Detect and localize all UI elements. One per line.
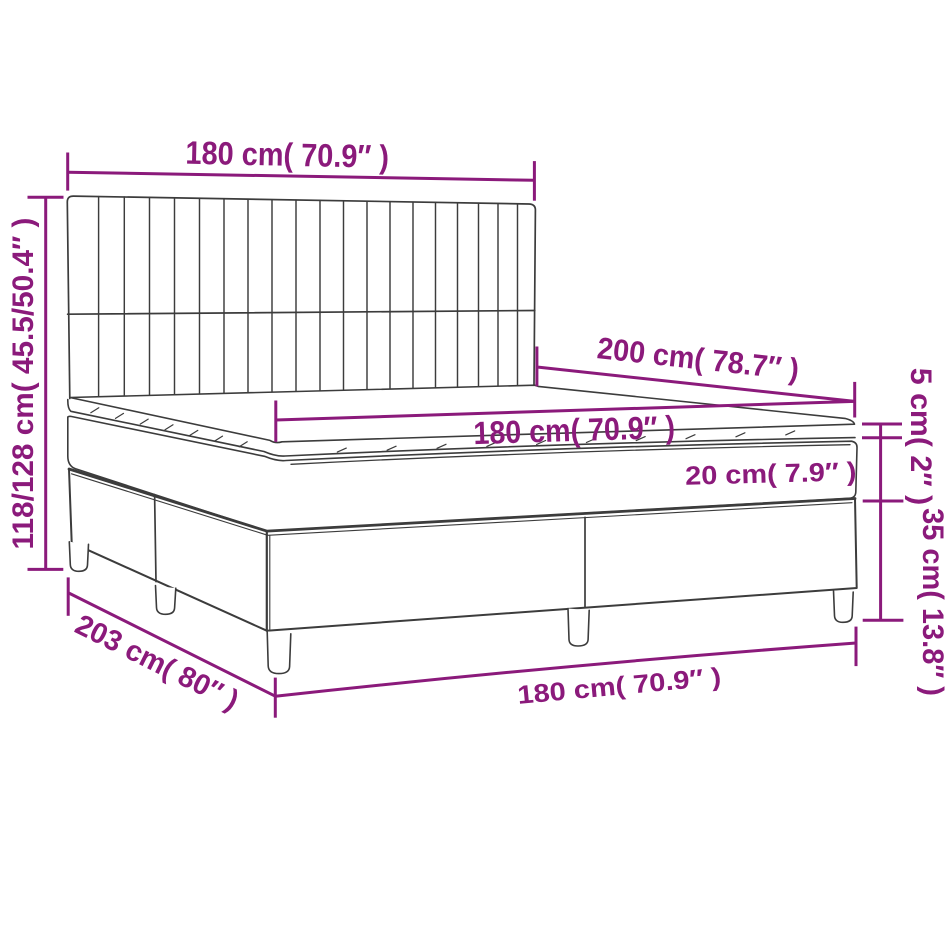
svg-text:5 cm( 2″ ): 5 cm( 2″ ) (904, 368, 937, 505)
svg-text:118/128 cm( 45.5/50.4″ ): 118/128 cm( 45.5/50.4″ ) (7, 218, 40, 550)
svg-text:35 cm( 13.8″ ): 35 cm( 13.8″ ) (916, 508, 947, 696)
svg-text:180 cm( 70.9″ ): 180 cm( 70.9″ ) (473, 410, 676, 451)
svg-text:20 cm( 7.9″ ): 20 cm( 7.9″ ) (685, 456, 857, 490)
svg-text:180 cm( 70.9″ ): 180 cm( 70.9″ ) (185, 134, 389, 175)
